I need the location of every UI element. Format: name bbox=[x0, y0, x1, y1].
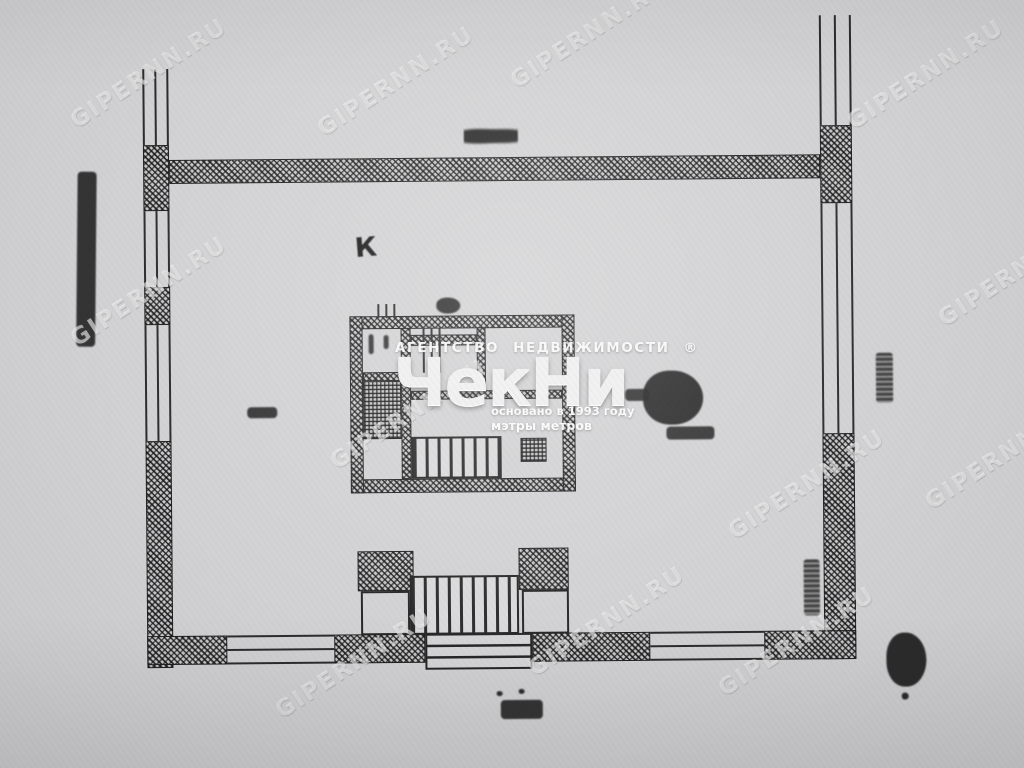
scanned-floor-plan-page: К GIPERNN.RU GIPERNN.RU GIPERNN.RU GIPER… bbox=[0, 0, 1024, 768]
ink-dot bbox=[902, 693, 909, 700]
top-wall bbox=[169, 154, 820, 184]
bottom-wall-segment bbox=[227, 635, 334, 665]
porch-post-right-base bbox=[522, 590, 569, 634]
interior-mark bbox=[384, 335, 389, 349]
staircase-block bbox=[411, 436, 501, 479]
registered-trademark-icon: ® bbox=[684, 340, 699, 356]
bottom-wall-segment bbox=[147, 635, 227, 665]
agency-slogan: мэтры метров bbox=[491, 418, 592, 433]
ink-blot bbox=[643, 370, 703, 425]
right-wall-segment bbox=[819, 15, 852, 125]
dimension-smudge bbox=[666, 426, 714, 439]
number-smudge bbox=[436, 297, 460, 313]
left-wall-segment bbox=[143, 145, 170, 211]
right-wall-segment bbox=[820, 203, 854, 433]
agency-founded-line: основано в 1993 году bbox=[491, 404, 634, 418]
porch-post-right bbox=[518, 548, 568, 590]
left-wall-segment bbox=[144, 325, 171, 441]
dimension-smudge-bottom bbox=[501, 700, 543, 719]
bottom-wall-segment bbox=[650, 631, 764, 661]
corner-ink-blot bbox=[886, 632, 926, 686]
right-wall-segment bbox=[820, 125, 853, 203]
left-wall-segment bbox=[145, 441, 173, 668]
porch-post-left bbox=[357, 551, 413, 591]
house-chimney-stub bbox=[377, 304, 395, 318]
dash-mark bbox=[247, 407, 277, 418]
house-outer-wall-bottom bbox=[351, 477, 576, 493]
entrance-steps bbox=[425, 633, 532, 670]
interior-mark bbox=[369, 334, 374, 354]
dimension-smudge-wall bbox=[804, 559, 820, 615]
ink-dot bbox=[497, 691, 503, 696]
dimension-smudge-top bbox=[464, 126, 518, 146]
dimension-smudge-right bbox=[876, 353, 893, 403]
small-interior-block bbox=[520, 438, 546, 462]
ink-dot bbox=[519, 689, 525, 694]
agency-logo: АГЕНТСТВО НЕДВИЖИМОСТИ ® ЧекНи основано … bbox=[395, 340, 640, 438]
room-letter-label: К bbox=[354, 233, 378, 262]
